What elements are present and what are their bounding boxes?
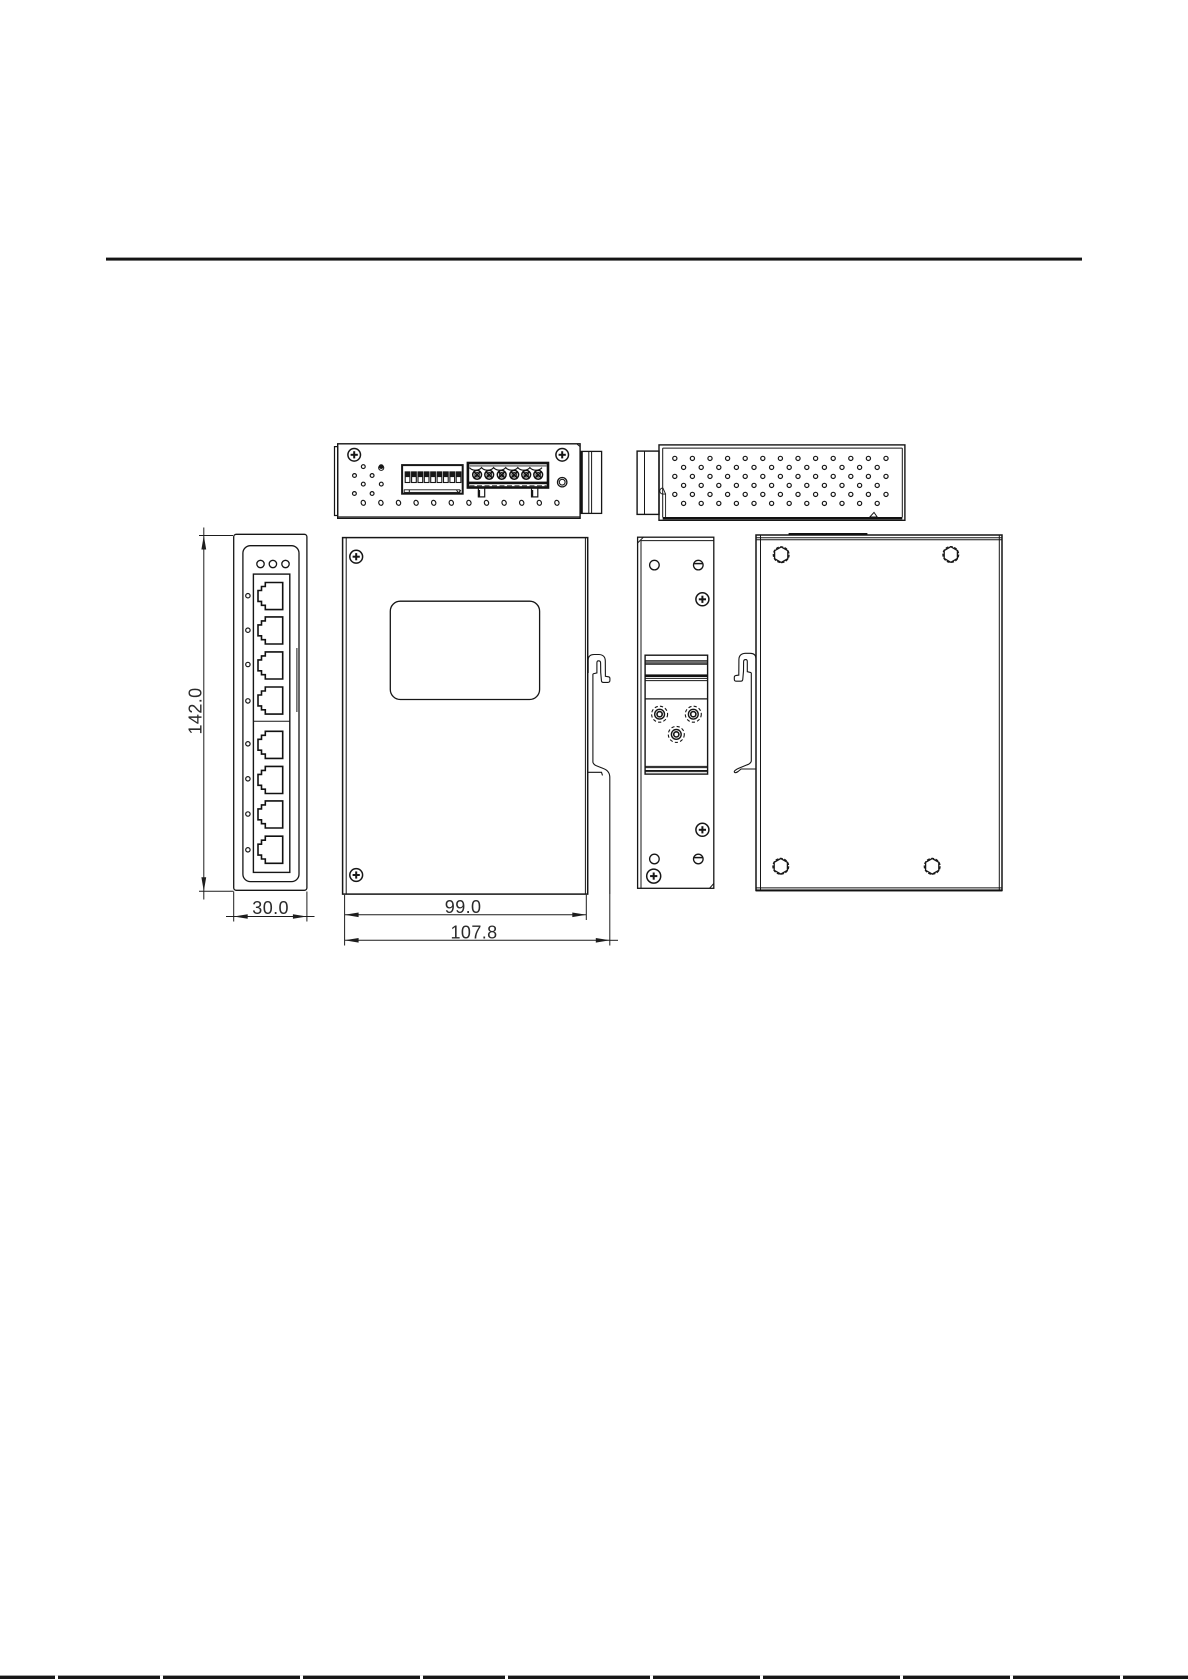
- svg-text:30.0: 30.0: [252, 898, 289, 918]
- svg-text:142.0: 142.0: [186, 687, 206, 734]
- svg-text:99.0: 99.0: [445, 897, 482, 917]
- svg-text:107.8: 107.8: [451, 923, 498, 943]
